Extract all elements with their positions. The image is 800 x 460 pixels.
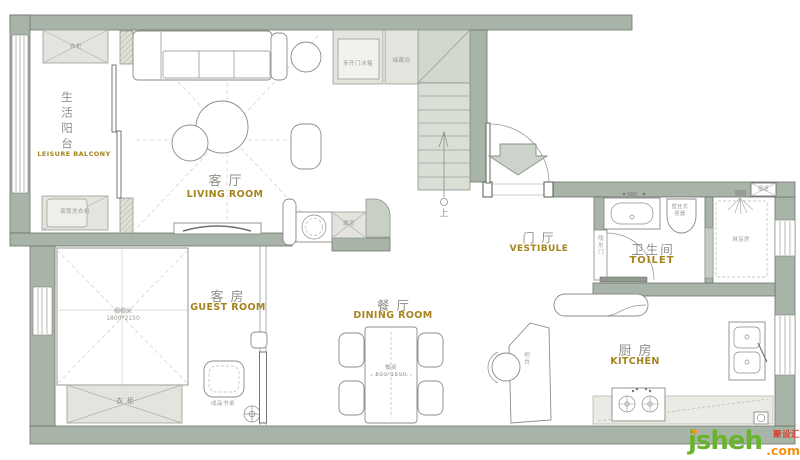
shower-head-icon bbox=[735, 190, 746, 196]
shower-room-label: 淋浴房 bbox=[724, 235, 758, 243]
vestibule-label-en: VESTIBULE bbox=[503, 244, 575, 254]
floor-plan-drawing bbox=[0, 0, 800, 460]
guest-room-sliding-door bbox=[260, 352, 267, 423]
door-handle-niche bbox=[251, 332, 267, 348]
fridge-label: 多开门冰箱 bbox=[335, 59, 381, 67]
washing-machine-label: 滚筒洗衣机 bbox=[42, 207, 108, 215]
watermark-dot-icon bbox=[692, 429, 697, 434]
toilet-label-en: TOILET bbox=[617, 255, 687, 266]
coffee-table-small bbox=[172, 125, 208, 161]
entry-door-leaf bbox=[486, 123, 490, 183]
living-room-label-zh: 客厅 bbox=[195, 170, 255, 189]
balcony-furniture bbox=[42, 30, 121, 230]
bar-sink bbox=[492, 353, 520, 381]
balcony-sliding-door-panel bbox=[117, 131, 121, 198]
balcony-room-label-en: LEISURE BALCONY bbox=[33, 150, 115, 158]
watermark-suffix: .com bbox=[766, 443, 800, 458]
watermark-cn: 聚设汇 bbox=[773, 428, 800, 440]
tatami-label: 榻榻米 bbox=[98, 306, 148, 315]
floor-plan: 衣柜 生活阳台 LEISURE BALCONY 滚筒洗衣机 多开门冰箱 储藏间 … bbox=[0, 0, 800, 460]
flue-living-label: 烟道 bbox=[334, 219, 364, 227]
dining-table-label: 餐桌 bbox=[371, 363, 411, 371]
watermark-brand: jsheh bbox=[688, 424, 762, 458]
stairs-up-label: 上 bbox=[434, 206, 454, 219]
desk-label: 成品书桌 bbox=[199, 399, 247, 407]
tatami-size-label: 1800*2150 bbox=[95, 315, 151, 322]
round-armchair bbox=[291, 42, 321, 72]
balcony-wardrobe-label: 衣柜 bbox=[45, 42, 107, 50]
balcony-sliding-door-panel bbox=[112, 65, 116, 132]
watermark: jsheh 聚设汇 .com bbox=[688, 424, 800, 460]
floor-drain bbox=[754, 412, 768, 424]
tv-cabinet bbox=[174, 223, 261, 234]
sofa-side-table bbox=[271, 33, 287, 80]
desk bbox=[204, 361, 244, 397]
sofa bbox=[133, 31, 272, 80]
dining-chair bbox=[339, 381, 364, 415]
guest-room-label-en: GUEST ROOM bbox=[190, 302, 266, 313]
faucet-icon bbox=[627, 192, 637, 197]
hidden-door-label: 隐形门 bbox=[596, 235, 604, 256]
balcony-room-label-zh: 生活阳台 bbox=[59, 91, 75, 153]
wall-hung-toilet-label: 壁挂式便器 bbox=[671, 204, 689, 218]
storage-label: 储藏间 bbox=[383, 56, 420, 64]
flue-wall-label: 烟道 bbox=[751, 185, 776, 192]
entry-door bbox=[483, 123, 553, 197]
dining-chair bbox=[418, 333, 443, 367]
stairs bbox=[418, 30, 470, 206]
dining-room-label-en: DINING ROOM bbox=[352, 310, 434, 321]
living-room-label-en: LIVING ROOM bbox=[172, 189, 278, 200]
dining-chair bbox=[339, 333, 364, 367]
gas-stove bbox=[612, 388, 665, 421]
bar-counter-label: 吧台 bbox=[522, 352, 530, 365]
guest-wardrobe-label: 衣柜 bbox=[100, 396, 150, 406]
kitchen-fixtures bbox=[593, 322, 773, 424]
dining-table-size-label: 800*1500 bbox=[366, 372, 416, 378]
counter-cap bbox=[554, 294, 648, 316]
toilet-fixtures bbox=[594, 183, 776, 282]
counter-corner bbox=[366, 199, 390, 237]
side-table bbox=[291, 124, 321, 169]
kitchen-label-en: KITCHEN bbox=[602, 356, 668, 367]
dining-chair bbox=[418, 381, 443, 415]
